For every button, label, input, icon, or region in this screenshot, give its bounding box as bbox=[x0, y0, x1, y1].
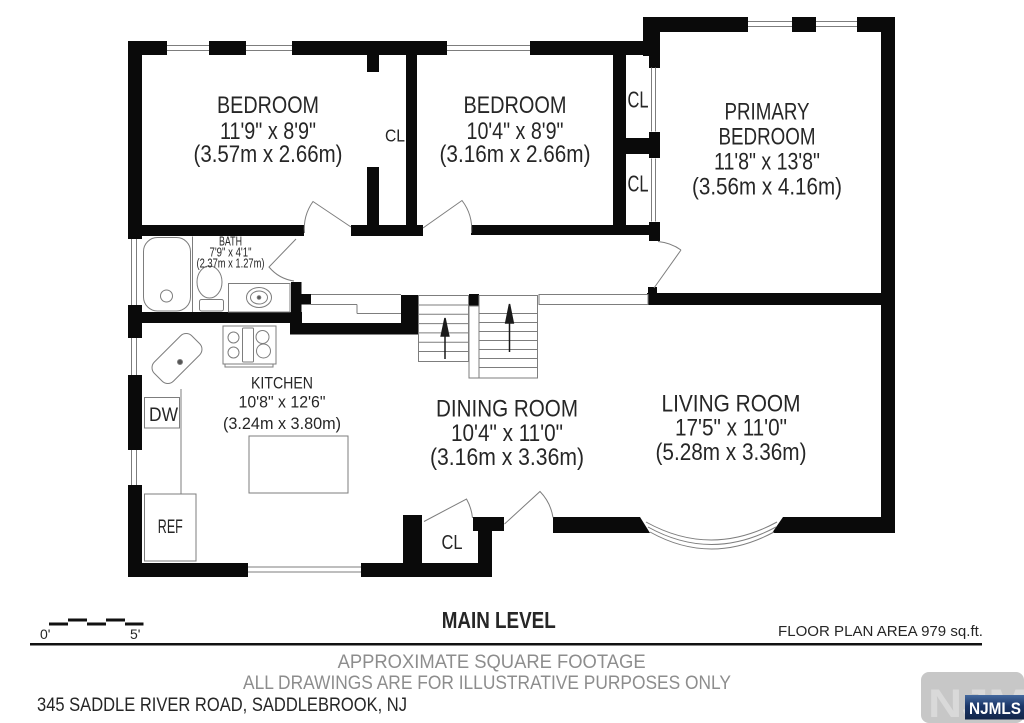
svg-text:CL: CL bbox=[385, 126, 405, 146]
svg-text:CL: CL bbox=[628, 87, 649, 113]
svg-text:FLOOR PLAN AREA 979 sq.ft.: FLOOR PLAN AREA 979 sq.ft. bbox=[778, 623, 983, 640]
svg-text:LIVING ROOM: LIVING ROOM bbox=[662, 391, 801, 418]
svg-text:(3.16m x 3.36m): (3.16m x 3.36m) bbox=[430, 444, 584, 471]
svg-text:(3.56m x 4.16m): (3.56m x 4.16m) bbox=[692, 174, 842, 201]
svg-text:5': 5' bbox=[130, 626, 140, 642]
svg-text:345 SADDLE RIVER ROAD, SADDLEB: 345 SADDLE RIVER ROAD, SADDLEBROOK, NJ bbox=[37, 694, 407, 716]
svg-text:10'8" x 12'6": 10'8" x 12'6" bbox=[239, 393, 326, 412]
svg-text:(3.57m x 2.66m): (3.57m x 2.66m) bbox=[194, 141, 343, 168]
svg-text:PRIMARY: PRIMARY bbox=[725, 99, 810, 126]
svg-text:(3.24m x 3.80m): (3.24m x 3.80m) bbox=[223, 414, 341, 433]
svg-text:BEDROOM: BEDROOM bbox=[464, 92, 567, 119]
svg-text:10'4" x 11'0": 10'4" x 11'0" bbox=[451, 420, 563, 447]
svg-text:DW: DW bbox=[149, 404, 179, 426]
svg-text:17'5" x 11'0": 17'5" x 11'0" bbox=[675, 415, 787, 442]
svg-text:11'8" x 13'8": 11'8" x 13'8" bbox=[714, 149, 820, 176]
svg-text:APPROXIMATE SQUARE FOOTAGE: APPROXIMATE SQUARE FOOTAGE bbox=[338, 651, 646, 673]
svg-text:(2.37m x 1.27m): (2.37m x 1.27m) bbox=[197, 256, 265, 271]
svg-text:BEDROOM: BEDROOM bbox=[719, 124, 816, 151]
svg-text:CL: CL bbox=[442, 532, 463, 554]
svg-text:(3.16m x 2.66m): (3.16m x 2.66m) bbox=[440, 141, 591, 168]
svg-text:CL: CL bbox=[628, 171, 649, 197]
svg-text:MAIN LEVEL: MAIN LEVEL bbox=[442, 607, 556, 633]
svg-text:NJMLS: NJMLS bbox=[969, 699, 1021, 718]
svg-text:DINING ROOM: DINING ROOM bbox=[436, 396, 578, 423]
svg-text:KITCHEN: KITCHEN bbox=[251, 374, 313, 393]
svg-text:0': 0' bbox=[40, 626, 50, 642]
svg-text:(5.28m x 3.36m): (5.28m x 3.36m) bbox=[656, 439, 807, 466]
svg-text:REF: REF bbox=[158, 516, 183, 538]
svg-text:ALL DRAWINGS ARE FOR ILLUSTRAT: ALL DRAWINGS ARE FOR ILLUSTRATIVE PURPOS… bbox=[243, 672, 731, 694]
svg-text:BEDROOM: BEDROOM bbox=[217, 92, 319, 119]
